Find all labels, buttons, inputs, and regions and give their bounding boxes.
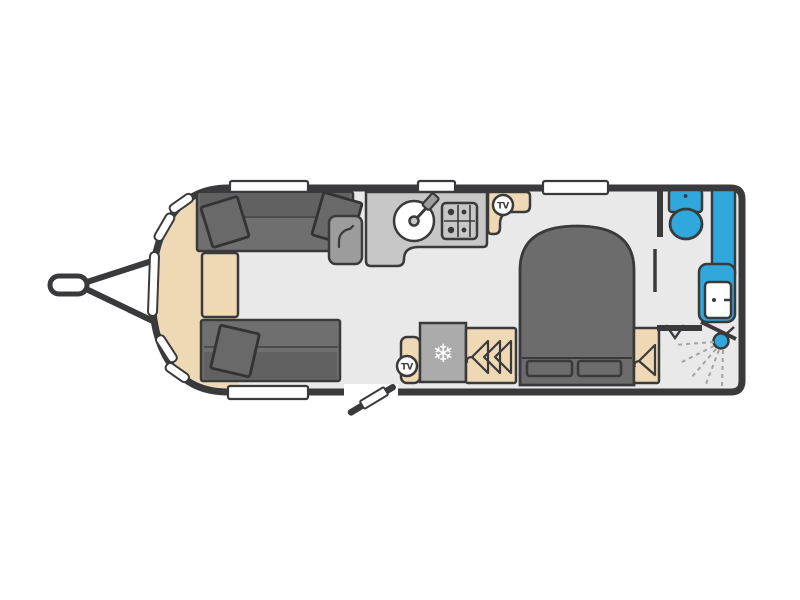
burner-icon <box>448 227 454 233</box>
front-chest <box>202 253 238 317</box>
pillow-icon <box>578 361 621 376</box>
burner-icon <box>462 228 467 233</box>
cistern-button-icon <box>684 194 688 198</box>
floorplan-canvas: TV TV ❄ <box>0 0 800 600</box>
tow-hitch <box>50 259 158 323</box>
pillow-icon <box>527 361 572 376</box>
toilet-bowl <box>670 209 702 239</box>
cupboard <box>329 216 362 264</box>
vanity-strip <box>712 190 735 274</box>
tv-point-front-label: TV <box>497 202 509 212</box>
caravan-floorplan: TV TV ❄ <box>0 0 800 600</box>
aframe-bar-bottom <box>84 288 157 323</box>
basin-drain-icon <box>712 298 716 302</box>
window-top-bedroom <box>543 181 608 194</box>
cushion-icon <box>211 325 260 377</box>
tv-point-rear-label: TV <box>401 363 413 373</box>
window-bottom-lounge <box>228 386 308 399</box>
aframe-bar-top <box>84 259 158 283</box>
burner-icon <box>448 209 454 215</box>
hitch-coupling <box>50 276 87 294</box>
snowflake-icon: ❄ <box>433 339 454 368</box>
front-window-icon <box>148 252 159 316</box>
burner-icon <box>462 210 467 215</box>
shower-head-icon <box>714 334 729 349</box>
